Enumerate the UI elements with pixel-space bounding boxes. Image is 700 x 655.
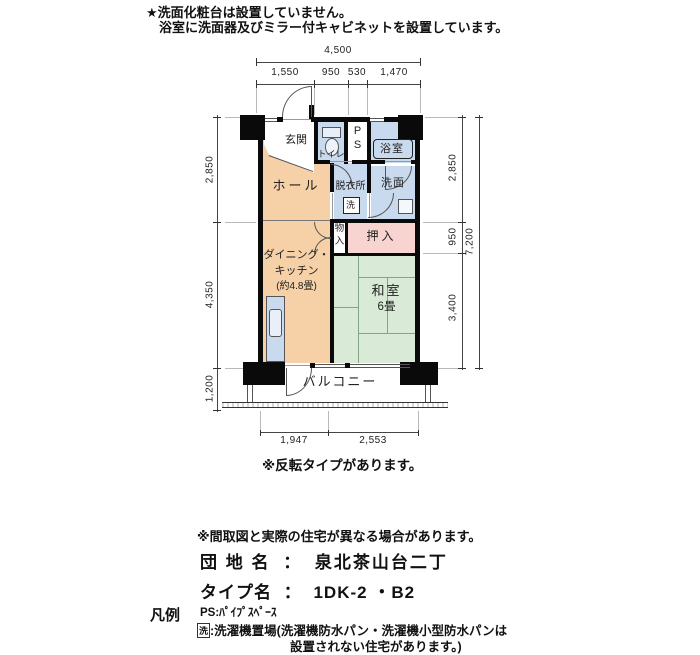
danchi-label: 団 地 名: [200, 553, 270, 572]
dim-tick: [475, 117, 483, 118]
dim-extension: [348, 88, 349, 115]
label-monoire-1: 物: [334, 224, 345, 235]
dim-extension: [225, 368, 243, 369]
dim-extension: [314, 88, 315, 115]
note-reverse-type: ※反転タイプがあります。: [262, 454, 422, 474]
dim-extension: [256, 88, 257, 113]
dim-extension: [425, 117, 458, 118]
dim-tick: [256, 58, 257, 66]
tatami-line: [358, 333, 415, 334]
dim-extension: [225, 117, 240, 118]
label-washer: 洗: [343, 200, 358, 210]
window-top-bath: [370, 118, 384, 119]
dim-extension: [328, 411, 329, 430]
label-senmen: 洗面: [371, 177, 415, 190]
wall-row-mid: [411, 160, 415, 164]
dim-extension: [260, 411, 261, 430]
dim-tick: [475, 368, 483, 369]
legend-ps: PS:ﾊﾟｲﾌﾟｽﾍﾟｰｽ: [200, 604, 277, 620]
dim-line-top-total: [256, 62, 421, 63]
dim-extension: [420, 88, 421, 113]
dim-right-1: 2,850: [448, 146, 459, 190]
entrance-door-leaf: [311, 86, 312, 117]
note-bath-cabinet: 浴室に洗面器及びミラー付キャビネットを設置しています。: [159, 17, 508, 36]
dim-line-right-inner: [462, 115, 463, 370]
window-top-left: [265, 118, 277, 119]
label-bath: 浴室: [373, 143, 411, 156]
dim-extension: [367, 88, 368, 115]
dim-left-1: 2,850: [205, 148, 216, 192]
dim-tick: [348, 80, 349, 88]
dim-top-4: 1,470: [369, 67, 419, 78]
legend-title: 凡例: [150, 604, 180, 625]
balcony-rail: [222, 402, 448, 403]
type-colon: ：: [284, 583, 302, 602]
label-dk-2: キッチン: [263, 265, 330, 278]
legend-washer-symbol: 洗: [197, 623, 210, 638]
window-dk-balcony: [315, 364, 345, 365]
footer-danchi-row: 団 地 名 ： 泉北茶山台二丁: [200, 548, 448, 573]
footer-disclaimer: ※間取図と実際の住宅が異なる場合があります。: [197, 526, 481, 545]
label-dk-1: ダイニング・: [263, 249, 330, 262]
window-washitsu-balcony: [350, 367, 410, 368]
danchi-colon: ：: [283, 553, 302, 572]
dim-top-total: 4,500: [308, 45, 368, 56]
dim-line-right-outer: [479, 115, 480, 370]
hall-dk-boundary: [263, 220, 330, 221]
balcony-door-opening: [285, 365, 310, 366]
dim-tick: [458, 117, 466, 118]
label-balcony: バルコニー: [242, 375, 438, 390]
label-ps-p: P: [348, 125, 367, 138]
senmen-basin: [398, 199, 413, 214]
wall-right: [415, 117, 420, 368]
balcony-rail: [222, 407, 448, 408]
kitchen-sink: [269, 309, 282, 337]
tatami-line: [334, 307, 358, 308]
pillar-top-right: [398, 115, 423, 140]
label-hall: ホール: [263, 179, 330, 194]
label-monoire-2: 入: [334, 237, 345, 248]
type-label: タイプ名: [200, 583, 272, 602]
window-washitsu-balcony: [350, 364, 410, 365]
dim-right-3: 3,400: [448, 286, 459, 330]
dim-bottom-1: 1,947: [262, 435, 326, 446]
legend-washer-row2: 設置されない住宅があります。): [290, 636, 462, 655]
window-top-bath: [370, 121, 384, 122]
dim-line-bottom: [260, 432, 419, 433]
toilet-door-opening: [330, 161, 352, 162]
dim-tick: [256, 80, 257, 88]
wall-ps-bath: [367, 122, 371, 164]
wall-left: [258, 117, 263, 368]
dim-extension: [418, 411, 419, 430]
dim-tick: [420, 58, 421, 66]
label-ps-s: S: [348, 139, 367, 152]
dim-left-2: 4,350: [205, 273, 216, 317]
dim-tick: [314, 80, 315, 88]
dim-top-1: 1,550: [260, 67, 310, 78]
entrance-opening: [283, 119, 311, 120]
entrance-door-arc: [282, 86, 312, 117]
toilet-tank: [322, 127, 341, 138]
window-dk-balcony: [315, 367, 345, 368]
dim-right-total: 7,200: [465, 220, 476, 264]
dim-tick: [420, 80, 421, 88]
label-washitsu-size: 6畳: [358, 301, 415, 314]
label-genkan: 玄関: [277, 134, 315, 147]
label-datsuijo: 脱衣所: [334, 181, 367, 193]
dim-tick: [213, 222, 221, 223]
bath-door-opening: [385, 161, 411, 162]
dim-right-2: 950: [448, 215, 459, 259]
label-oshiire: 押入: [348, 230, 415, 244]
type-value: 1DK-2 ・B2: [313, 583, 415, 602]
wall-row-253: [330, 253, 415, 256]
label-washitsu: 和室: [358, 284, 415, 299]
dim-tick: [458, 368, 466, 369]
label-toilet: トイレ: [316, 149, 346, 159]
dim-left-3: 1,200: [205, 367, 216, 411]
dim-tick: [213, 117, 221, 118]
window-top-left: [265, 121, 277, 122]
label-dk-3: (約4.8畳): [263, 281, 330, 293]
datsuijo-opening: [332, 193, 333, 219]
dim-line-top-sub: [256, 84, 421, 85]
footer-type-row: タイプ名 ： 1DK-2 ・B2: [200, 578, 415, 603]
dim-tick: [367, 80, 368, 88]
dim-extension: [225, 222, 256, 223]
pillar-top-left: [240, 115, 265, 140]
wall-top: [311, 117, 370, 122]
wall-row-mid: [314, 160, 330, 164]
danchi-name: 泉北茶山台二丁: [315, 553, 448, 572]
dim-bottom-2: 2,553: [341, 435, 405, 446]
